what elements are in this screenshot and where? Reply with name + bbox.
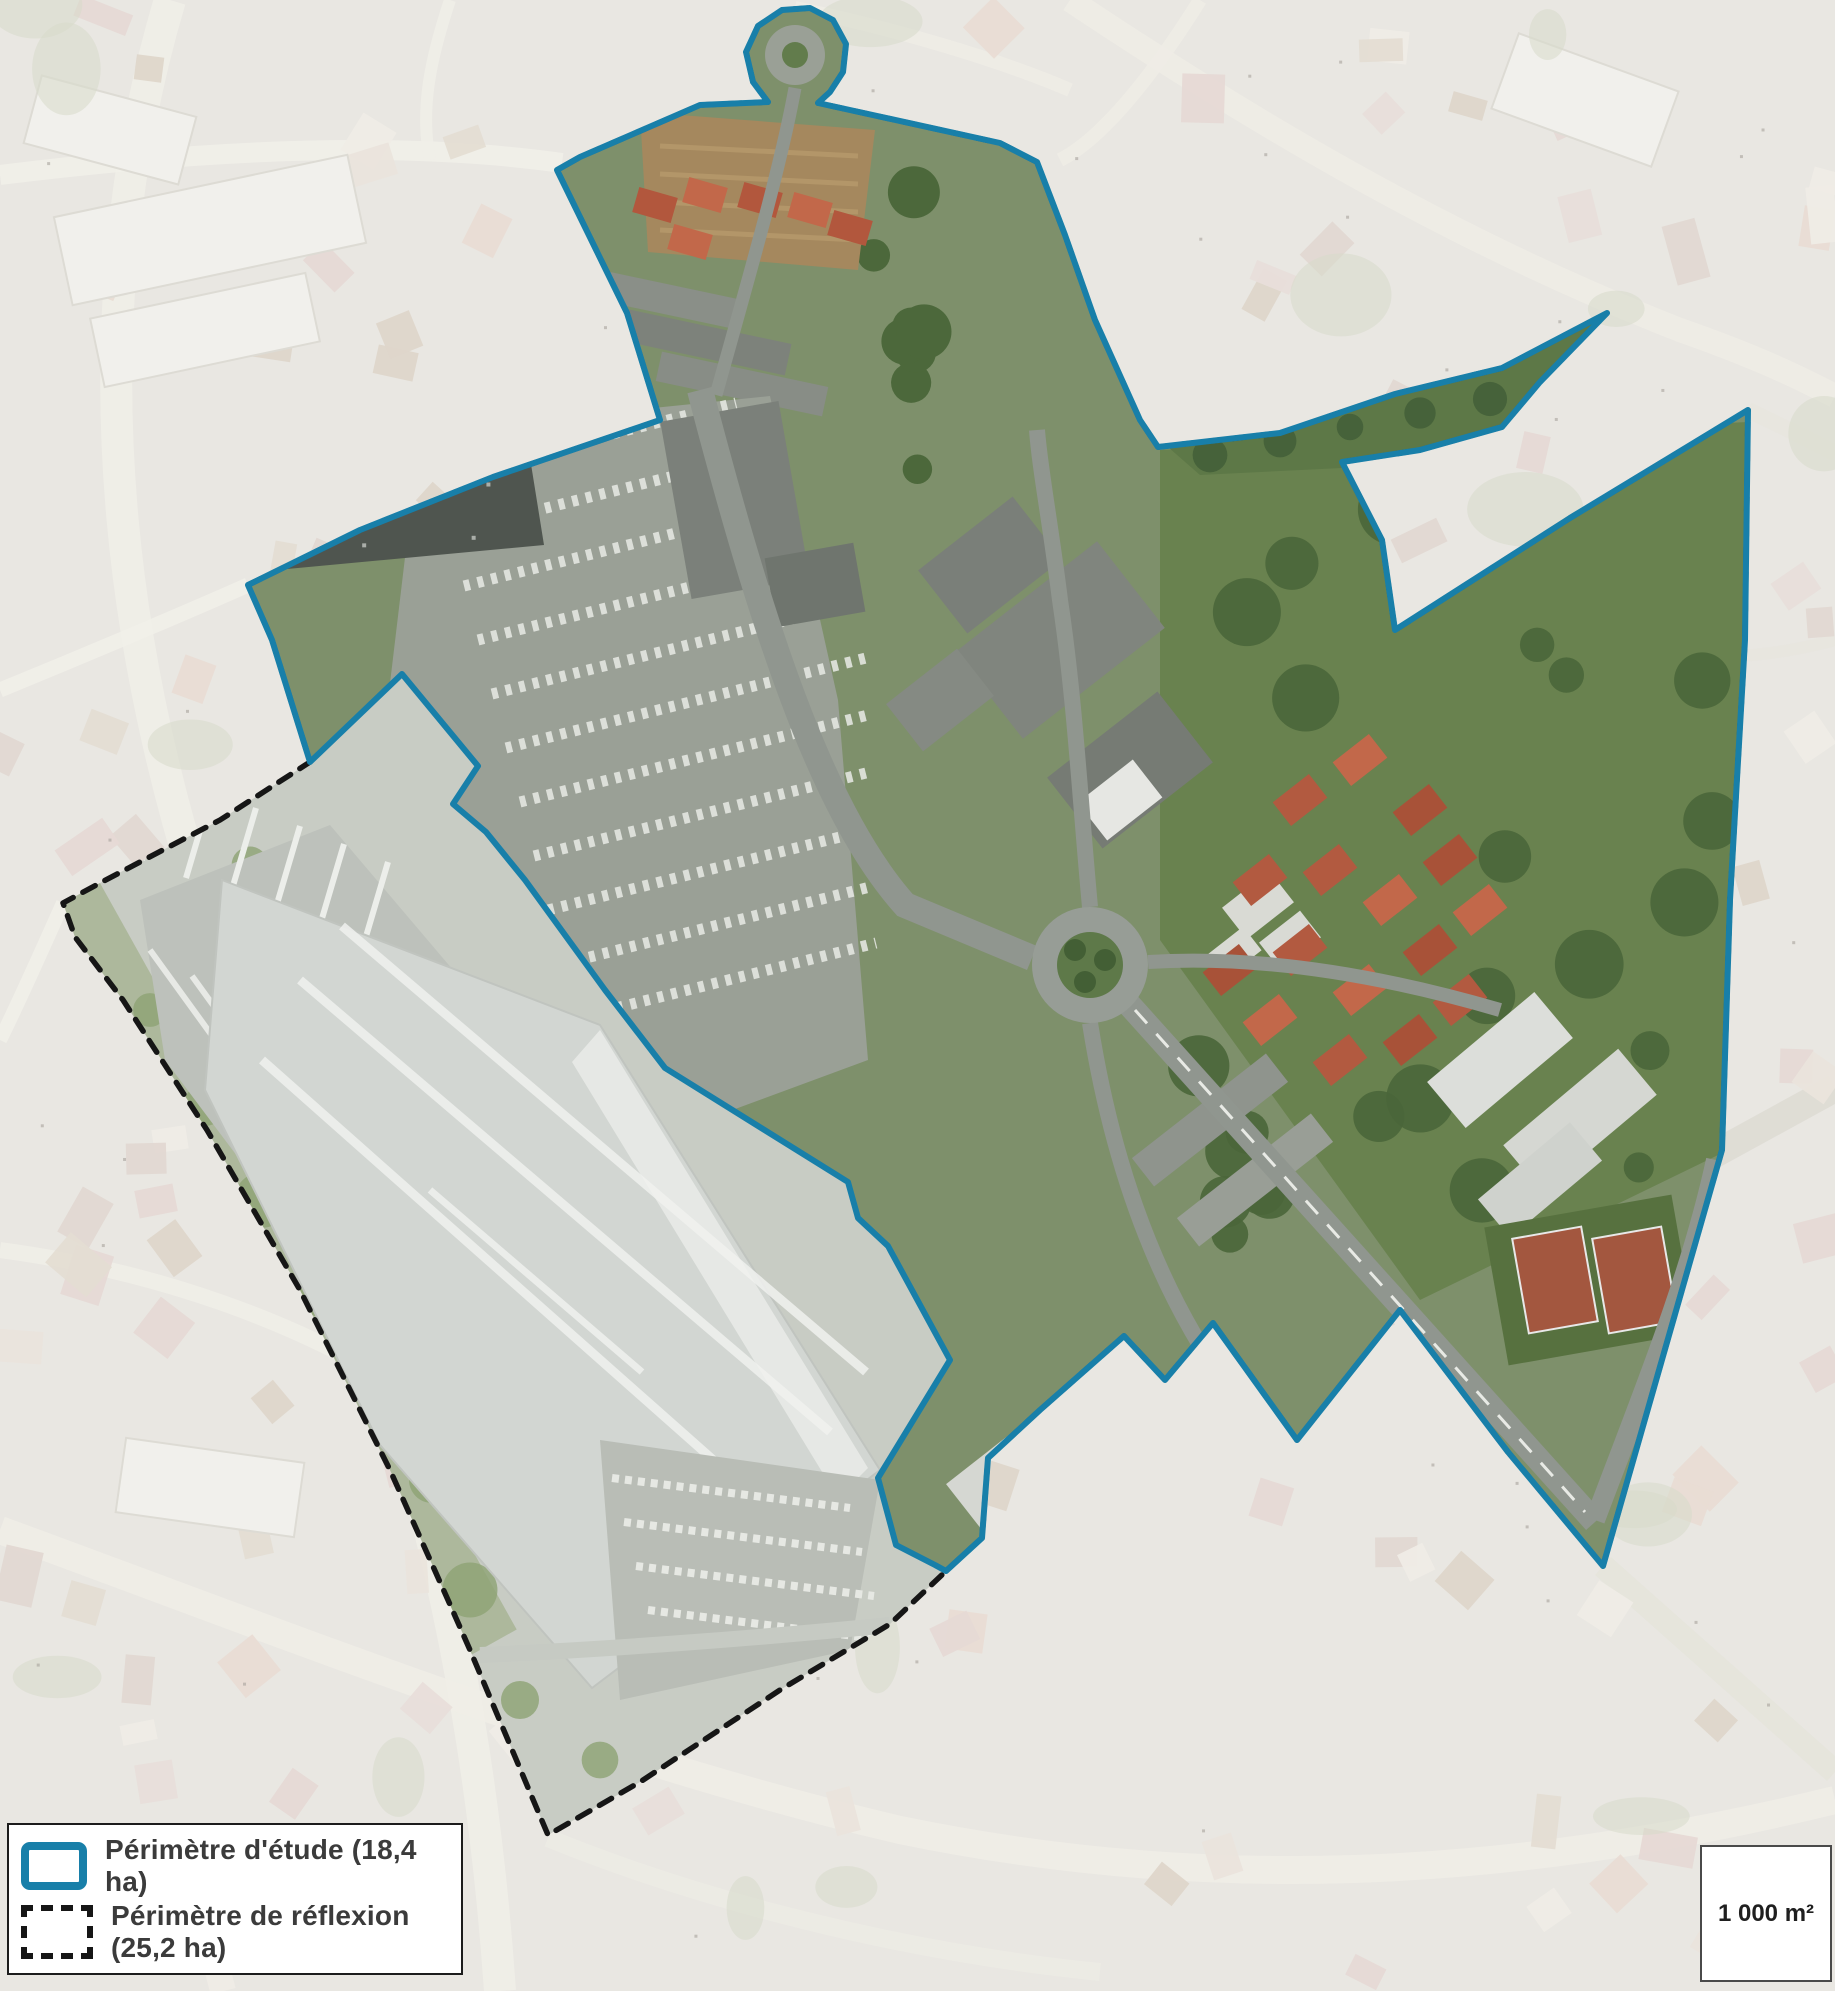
tree-canopy [1473,382,1507,416]
roof-vent [472,536,476,540]
suburb-house [126,1143,167,1175]
legend-label-reflexion: Périmètre de réflexion (25,2 ha) [111,1900,449,1964]
suburb-speck [1339,61,1342,64]
suburb-house [134,1760,178,1805]
suburb-speck [186,710,189,713]
suburb-speck [47,162,50,165]
scale-reference-box: 1 000 m² [1700,1845,1832,1982]
suburb-green-patch [372,1737,424,1817]
suburb-speck [694,1935,697,1938]
legend: Périmètre d'étude (18,4 ha) Périmètre de… [7,1823,463,1975]
tree-canopy [1631,1031,1670,1070]
suburb-speck [1526,1525,1529,1528]
aerial-map: Périmètre d'étude (18,4 ha) Périmètre de… [0,0,1835,1991]
suburb-speck [1248,75,1251,78]
suburb-house [0,1329,44,1365]
study-perimeter-swatch-icon [21,1842,87,1890]
suburb-speck [1431,1464,1434,1467]
tree-canopy [1674,652,1730,708]
suburb-speck [1695,1621,1698,1624]
suburb-speck [1558,320,1561,323]
suburb-speck [1199,238,1202,241]
tree-canopy [1479,830,1531,882]
suburb-green-patch [815,1866,877,1908]
suburb-speck [1264,153,1267,156]
tree-canopy [897,304,952,359]
suburb-speck [243,1683,246,1686]
suburb-speck [1762,128,1765,131]
suburb-speck [108,839,111,842]
tree-canopy [1555,930,1624,999]
suburb-green-patch [1593,1797,1690,1835]
suburb-green-patch [148,719,233,770]
tree-canopy [1520,628,1554,662]
suburb-speck [1767,1704,1770,1707]
suburb-speck [1516,1482,1519,1485]
legend-item-study: Périmètre d'étude (18,4 ha) [21,1834,449,1898]
roof-vent [362,543,366,547]
suburb-speck [37,1664,40,1667]
suburb-house [1806,607,1835,639]
tree-canopy [1064,939,1086,961]
suburb-speck [817,1677,820,1680]
suburb-house [1181,73,1225,123]
tree-canopy [1337,414,1364,441]
suburb-green-patch [727,1876,765,1940]
tree-canopy [1265,537,1318,590]
aerial-map-svg [0,0,1835,1991]
suburb-speck [1346,216,1349,219]
suburb-speck [1555,418,1558,421]
tree-canopy [888,166,940,218]
suburb-house [1359,38,1403,62]
scale-reference-label: 1 000 m² [1718,1900,1814,1928]
legend-item-reflexion: Périmètre de réflexion (25,2 ha) [21,1900,449,1964]
tree-canopy [1549,657,1584,692]
tennis-court [1512,1227,1598,1334]
suburb-speck [1740,155,1743,158]
suburb-speck [102,1244,105,1247]
suburb-speck [1792,941,1795,944]
tree-canopy [1404,397,1435,428]
suburb-speck [1661,389,1664,392]
suburb-speck [604,326,607,329]
suburb-house [134,54,165,83]
suburb-speck [1075,157,1078,160]
tree-canopy [903,455,932,484]
suburb-speck [123,1158,126,1161]
suburb-speck [1547,1599,1550,1602]
suburb-green-patch [32,23,100,116]
tree-canopy [501,1681,539,1719]
suburb-speck [41,1124,44,1127]
mini-roundabout-island [782,42,808,68]
tree-canopy [582,1742,619,1779]
suburb-house [121,1654,155,1705]
suburb-speck [1445,368,1448,371]
tree-canopy [1074,971,1096,993]
suburb-speck [1202,1829,1205,1832]
tree-canopy [1650,868,1718,936]
suburb-green-patch [1290,253,1391,336]
legend-label-study: Périmètre d'étude (18,4 ha) [105,1834,449,1898]
tree-canopy [1094,949,1116,971]
tree-canopy [1353,1091,1404,1142]
suburb-green-patch [13,1656,102,1698]
reflection-perimeter-swatch-icon [21,1905,93,1959]
tree-canopy [1213,578,1281,646]
tree-canopy [1272,664,1339,731]
tree-canopy [1624,1152,1654,1182]
roof-vent [486,483,490,487]
suburb-speck [872,89,875,92]
suburb-speck [915,1660,918,1663]
suburb-green-patch [1529,9,1566,60]
